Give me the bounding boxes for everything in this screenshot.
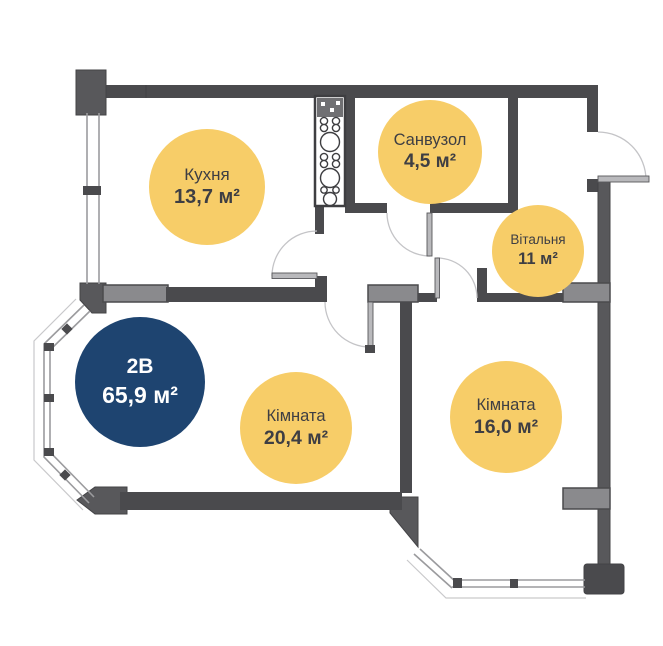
vent-shaft — [315, 96, 345, 206]
bay-pillar-top — [80, 283, 106, 313]
living-name: Вітальня — [510, 232, 565, 249]
bedroom1-name: Кімната — [266, 406, 325, 427]
floor-plan-drawing — [0, 0, 663, 646]
hall-t-block — [368, 285, 418, 302]
room-label-bathroom: Санвузол 4,5 м² — [378, 100, 482, 204]
bay-pillar-bottom — [77, 487, 127, 514]
kitchen-area: 13,7 м² — [174, 185, 240, 210]
kitchen-bottom-wall — [166, 287, 327, 302]
bedroom2-area: 16,0 м² — [474, 415, 538, 439]
shaft-bottom-stub — [315, 206, 324, 234]
pillar-bottom-right — [584, 564, 624, 594]
entry-hinge-notch — [587, 179, 598, 192]
unit-area: 65,9 м² — [102, 381, 178, 411]
entry-door-leaf — [598, 176, 649, 182]
bay-tick — [44, 394, 54, 402]
bedroom1-door-tick — [365, 345, 375, 353]
bay-tick — [44, 448, 54, 456]
kitchen-pilaster — [103, 285, 168, 302]
left-window — [83, 113, 101, 284]
right-pilaster-upper — [563, 283, 610, 302]
room1-bottom-wall — [120, 492, 402, 510]
unit-code: 2В — [127, 353, 154, 380]
room-label-bedroom1: Кімната 20,4 м² — [240, 372, 352, 484]
bottom-window-outer-line — [407, 560, 586, 598]
bathroom-door-leaf — [427, 213, 432, 256]
hall-wall-connector — [418, 293, 437, 302]
bedroom2-name: Кімната — [476, 395, 535, 416]
bedroom1-area: 20,4 м² — [264, 426, 328, 450]
bathroom-bottom-wall-right — [430, 203, 518, 213]
right-wall — [598, 180, 610, 571]
pillar-top-left — [76, 70, 106, 115]
bottom-right-window — [407, 549, 586, 598]
left-window-tick — [83, 186, 101, 195]
room-label-living: Вітальня 11 м² — [492, 205, 584, 297]
bay-tick — [44, 343, 54, 351]
kitchen-name: Кухня — [184, 164, 230, 185]
right-pilaster-lower — [563, 488, 610, 509]
bathroom-right-wall — [508, 96, 518, 210]
vent-shaft-hatch-box — [317, 98, 343, 117]
bedroom2-door — [435, 258, 477, 298]
bathroom-area: 4,5 м² — [404, 150, 456, 174]
unit-badge: 2В 65,9 м² — [75, 317, 205, 447]
bathroom-left-wall — [345, 96, 355, 206]
inter-room-wall — [400, 302, 412, 493]
window-tick — [453, 578, 462, 588]
entry-wall-stub — [587, 96, 598, 132]
entry-door — [598, 132, 649, 182]
living-area: 11 м² — [518, 249, 558, 270]
floor-plan-canvas: Кухня 13,7 м² Санвузол 4,5 м² Вітальня 1… — [0, 0, 663, 646]
window-tick — [510, 579, 518, 588]
room-label-bedroom2: Кімната 16,0 м² — [450, 361, 562, 473]
bedroom2-door-leaf — [435, 258, 440, 298]
bedroom1-door — [325, 302, 375, 353]
bathroom-door — [387, 213, 432, 256]
bedroom1-door-leaf — [368, 302, 373, 347]
bathroom-bottom-wall-left — [345, 203, 387, 213]
kitchen-door-leaf — [272, 273, 317, 279]
bathroom-name: Санвузол — [394, 130, 467, 151]
kitchen-door — [272, 231, 317, 279]
room-label-kitchen: Кухня 13,7 м² — [149, 129, 265, 245]
kitchen-corner-stub — [315, 276, 327, 302]
